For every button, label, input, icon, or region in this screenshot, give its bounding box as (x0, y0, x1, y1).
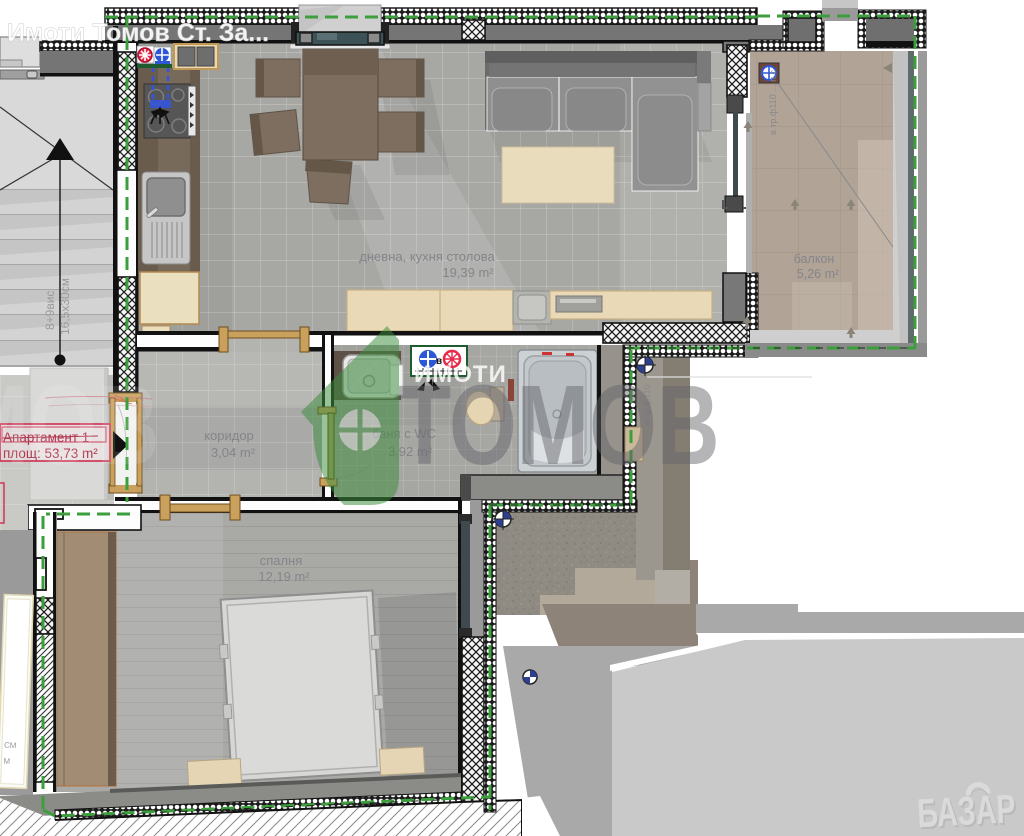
svg-text:дневна, кухня столова: дневна, кухня столова (359, 249, 495, 264)
svg-text:19,39 m²: 19,39 m² (442, 265, 494, 280)
svg-text:3,04 m²: 3,04 m² (211, 445, 256, 460)
svg-text:в.тр.ф110 ... п.с: в.тр.ф110 ... п.с (768, 69, 778, 135)
svg-text:коридор: коридор (204, 428, 254, 443)
svg-text:в.тр.ф110: в.тр.ф110 (500, 531, 510, 572)
svg-text:ТОМОВ: ТОМОВ (398, 363, 720, 489)
svg-text:12,19 m²: 12,19 m² (258, 569, 310, 584)
svg-text:5,26 m²: 5,26 m² (797, 267, 839, 281)
svg-text:Имоти Томов Ст. За...: Имоти Томов Ст. За... (7, 19, 269, 47)
svg-text:ТОМОВ: ТОМОВ (0, 363, 160, 489)
svg-text:балкон: балкон (794, 252, 835, 266)
svg-text:СМ: СМ (4, 741, 17, 750)
svg-text:спалня: спалня (260, 553, 303, 568)
svg-text:М: М (3, 757, 10, 766)
svg-text:8+9вис: 8+9вис (43, 291, 57, 330)
svg-text:16,5x30см: 16,5x30см (58, 278, 72, 335)
